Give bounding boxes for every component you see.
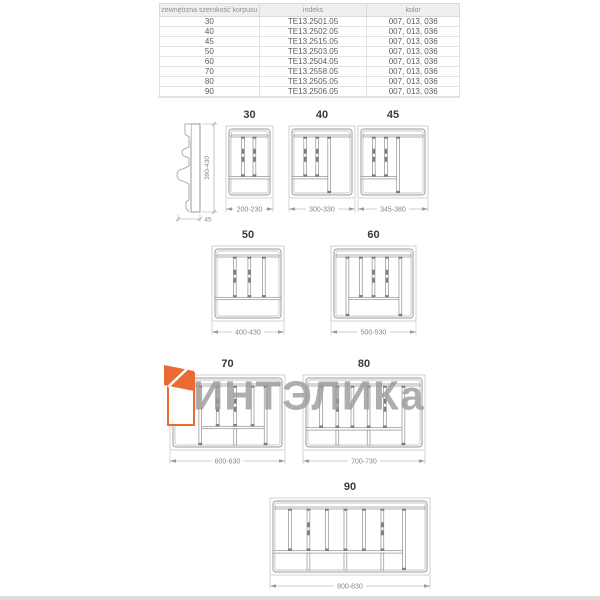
side-depth-dim: 45: [204, 217, 212, 224]
side-profile-drawing: 390-430 45: [164, 118, 222, 226]
tray-figure-50: 50 400-430: [209, 228, 287, 341]
table-cell: 007, 013, 036: [367, 37, 460, 47]
table-row: 70TE13.2558.05007, 013, 036: [160, 67, 460, 77]
svg-text:300-330: 300-330: [309, 207, 335, 214]
col-header-width: zewnętrzna szerokość korpusu: [160, 4, 260, 17]
tray-drawing-60: 500-530: [328, 244, 419, 341]
table-cell: 30: [160, 17, 260, 27]
table-cell: TE13.2515.05: [259, 37, 367, 47]
table-cell: TE13.2506.05: [259, 87, 367, 97]
table-row: 45TE13.2515.05007, 013, 036: [160, 37, 460, 47]
spec-table-header: zewnętrzna szerokość korpusu indeks kolo…: [160, 4, 460, 17]
tray-size-label: 40: [286, 108, 358, 124]
table-row: 30TE13.2501.05007, 013, 036: [160, 17, 460, 27]
table-row: 50TE13.2503.05007, 013, 036: [160, 47, 460, 57]
tray-size-label: 60: [328, 228, 419, 244]
side-height-dim: 390-430: [204, 156, 211, 180]
table-cell: 45: [160, 37, 260, 47]
table-cell: 70: [160, 67, 260, 77]
table-cell: TE13.2505.05: [259, 77, 367, 87]
table-cell: 007, 013, 036: [367, 27, 460, 37]
svg-text:600-630: 600-630: [215, 459, 241, 466]
svg-text:345-380: 345-380: [380, 207, 406, 214]
col-header-index: indeks: [259, 4, 367, 17]
table-cell: TE13.2503.05: [259, 47, 367, 57]
tray-size-label: 80: [300, 357, 428, 373]
col-header-color: kolor: [367, 4, 460, 17]
table-cell: TE13.2502.05: [259, 27, 367, 37]
table-row: 80TE13.2505.05007, 013, 036: [160, 77, 460, 87]
table-row: 60TE13.2504.05007, 013, 036: [160, 57, 460, 67]
section-divider: [157, 97, 460, 98]
table-cell: 007, 013, 036: [367, 57, 460, 67]
tray-size-label: 90: [267, 480, 433, 496]
table-cell: 90: [160, 87, 260, 97]
tray-drawing-45: 345-380: [355, 124, 431, 218]
table-cell: TE13.2558.05: [259, 67, 367, 77]
table-row: 90TE13.2506.05007, 013, 036: [160, 87, 460, 97]
page-bottom-border: [0, 596, 600, 600]
watermark-text: ИНТЭЛИКа: [193, 373, 425, 420]
tray-figure-45: 45 345-380: [355, 108, 431, 218]
table-cell: 60: [160, 57, 260, 67]
table-cell: 80: [160, 77, 260, 87]
svg-text:700-730: 700-730: [351, 459, 377, 466]
table-cell: 50: [160, 47, 260, 57]
table-row: 40TE13.2502.05007, 013, 036: [160, 27, 460, 37]
table-cell: 40: [160, 27, 260, 37]
svg-text:500-530: 500-530: [361, 330, 387, 337]
spec-table: zewnętrzna szerokość korpusu indeks kolo…: [159, 3, 460, 97]
tray-figure-60: 60 500-530: [328, 228, 419, 341]
svg-text:800-830: 800-830: [337, 584, 363, 591]
tray-size-label: 45: [355, 108, 431, 124]
tray-drawing-90: 800-830: [267, 496, 433, 595]
tray-size-label: 30: [223, 108, 276, 124]
svg-text:200-230: 200-230: [237, 207, 263, 214]
spec-table-body: 30TE13.2501.05007, 013, 03640TE13.2502.0…: [160, 17, 460, 97]
table-cell: 007, 013, 036: [367, 87, 460, 97]
table-cell: TE13.2504.05: [259, 57, 367, 67]
tray-size-label: 50: [209, 228, 287, 244]
tray-figure-30: 30 200-230: [223, 108, 276, 218]
tray-figure-40: 40 300-330: [286, 108, 358, 218]
table-cell: TE13.2501.05: [259, 17, 367, 27]
table-cell: 007, 013, 036: [367, 47, 460, 57]
catalog-page: zewnętrzna szerokość korpusu indeks kolo…: [0, 0, 600, 600]
table-cell: 007, 013, 036: [367, 67, 460, 77]
tray-drawing-40: 300-330: [286, 124, 358, 218]
tray-drawing-30: 200-230: [223, 124, 276, 218]
tray-drawing-50: 400-430: [209, 244, 287, 341]
table-cell: 007, 013, 036: [367, 17, 460, 27]
tray-figure-90: 90 800-830: [267, 480, 433, 595]
svg-text:400-430: 400-430: [235, 330, 261, 337]
table-cell: 007, 013, 036: [367, 77, 460, 87]
